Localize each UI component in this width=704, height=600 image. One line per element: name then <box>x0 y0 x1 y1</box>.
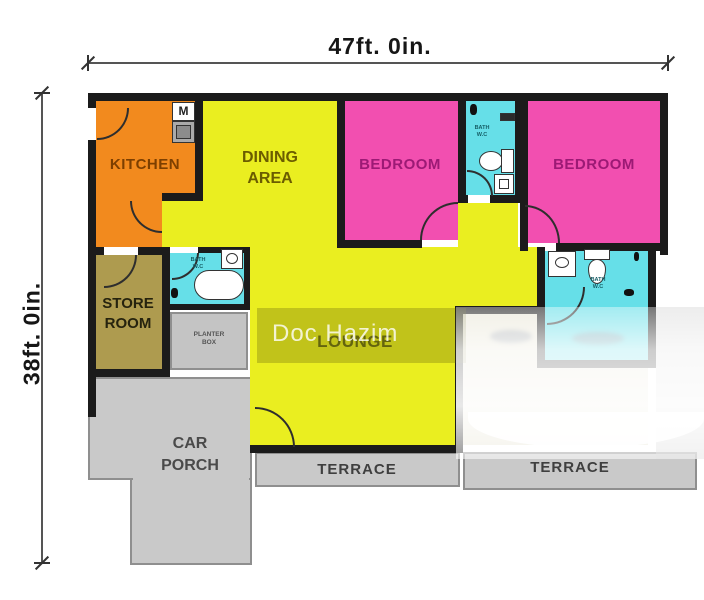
terrace-left-label: TERRACE <box>287 460 427 480</box>
car-porch-label: CAR PORCH <box>130 433 250 478</box>
bedroom-right-label: BEDROOM <box>534 155 654 175</box>
bath-right-basin-bowl <box>555 257 569 268</box>
bath-left-label: BATH W.C <box>178 257 218 271</box>
wall-segment <box>88 93 96 108</box>
bath-right-hook-icon <box>634 252 639 261</box>
bath-right-drain-icon <box>624 289 634 296</box>
wall-segment <box>244 247 250 310</box>
bath-left-basin-bowl <box>226 253 238 264</box>
hallway-bath-access <box>458 203 518 247</box>
bath-left-drain-icon <box>171 288 178 298</box>
car-porch-area-lower <box>130 478 252 565</box>
bath-top-toilet-bowl-icon <box>479 151 503 171</box>
dimension-endbar <box>34 92 50 94</box>
bath-top-shower-inner <box>499 179 509 189</box>
wall-segment <box>458 93 466 203</box>
dimension-endbar <box>34 562 50 564</box>
wall-segment <box>515 93 523 203</box>
dimension-width-label: 47ft. 0in. <box>280 33 480 60</box>
floor-plan: 47ft. 0in. 38ft. 0in. <box>0 0 704 600</box>
watermark-text: Doc Hazim <box>272 320 398 348</box>
bath-top-drain-icon <box>470 104 477 115</box>
wall-segment <box>337 240 422 248</box>
wall-segment <box>162 193 203 201</box>
dimension-width-line <box>88 62 668 64</box>
bath-right-label: BATH W.C <box>578 277 618 291</box>
wall-segment <box>660 93 668 255</box>
kitchen-stove-inner <box>176 125 191 139</box>
bath-top-label: BATH W.C <box>462 125 502 139</box>
kitchen-sink-icon: M <box>172 102 195 121</box>
terrace-right-label: TERRACE <box>500 458 640 478</box>
bath-top-toilet-tank-icon <box>501 149 514 173</box>
dimension-endbar <box>667 55 669 71</box>
wall-segment <box>88 93 668 101</box>
bedroom-left-label: BEDROOM <box>340 155 460 175</box>
wall-segment <box>88 369 170 377</box>
dining-label: DINING AREA <box>200 148 340 190</box>
room-dining-strip <box>162 201 203 247</box>
wall-segment <box>490 195 523 203</box>
wall-segment <box>88 140 96 377</box>
store-label: STORE ROOM <box>88 294 168 333</box>
dimension-height-line <box>41 93 43 563</box>
hallway <box>250 247 537 306</box>
kitchen-label: KITCHEN <box>95 155 195 175</box>
wall-segment <box>458 195 468 203</box>
bath-left-tub-icon <box>194 270 244 300</box>
bath-top-basin-icon <box>500 113 515 121</box>
dimension-endbar <box>87 55 89 71</box>
wall-segment <box>88 247 104 255</box>
wall-segment <box>168 304 250 310</box>
planter-box-label: PLANTER BOX <box>180 331 238 348</box>
wall-segment <box>88 377 96 417</box>
